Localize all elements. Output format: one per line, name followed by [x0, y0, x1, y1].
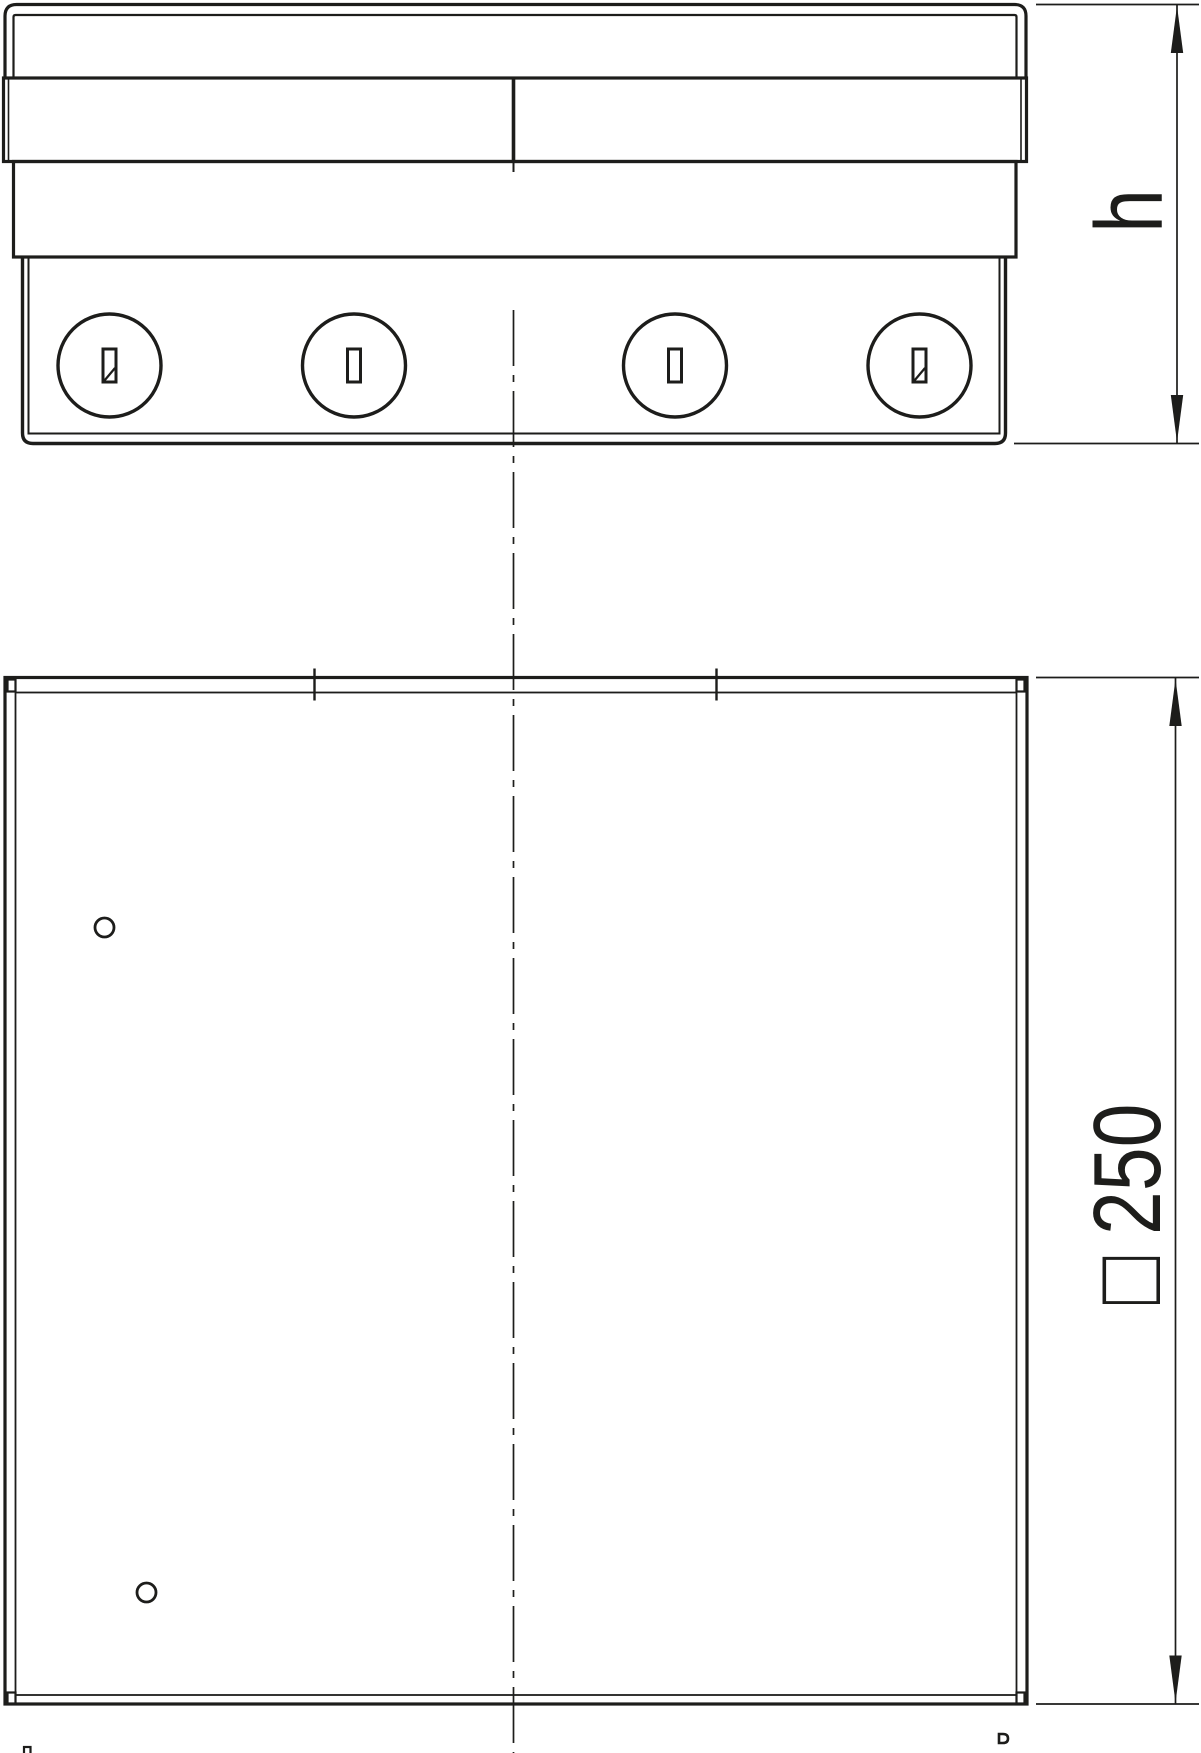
- plan-view: [5, 669, 1027, 1705]
- page-crop-marks: [24, 1734, 1008, 1753]
- corner-detail-bottom-right: [1017, 1693, 1025, 1705]
- height-dimension: h: [1014, 5, 1199, 444]
- height-arrow-up: [1171, 6, 1183, 53]
- corner-detail-bottom-left: [8, 1693, 16, 1705]
- screw-3: [624, 314, 727, 417]
- corner-detail-top-right: [1017, 680, 1025, 692]
- side-view: [4, 5, 1027, 444]
- pilot-hole-lower: [137, 1583, 156, 1602]
- crop-mark-left: [24, 1747, 31, 1753]
- screw-1-slot: [103, 349, 116, 382]
- screw-3-circle: [624, 314, 727, 417]
- corner-detail-top-left: [8, 680, 16, 692]
- screw-2-circle: [303, 314, 406, 417]
- width-arrow-down: [1169, 1656, 1181, 1703]
- technical-drawing-page: h □ 250: [0, 0, 1201, 1753]
- height-arrow-down: [1171, 395, 1183, 442]
- screw-4: [868, 314, 971, 417]
- upper-box-band: [14, 162, 1017, 258]
- screw-1-circle: [58, 314, 161, 417]
- screw-3-slot: [669, 349, 682, 382]
- screw-1-slot-diagonal: [105, 368, 116, 381]
- screw-4-slot-diagonal: [915, 368, 926, 381]
- width-dimension-label: □ 250: [1074, 1104, 1181, 1305]
- screw-4-circle: [868, 314, 971, 417]
- height-dimension-label: h: [1076, 189, 1183, 233]
- screw-1: [58, 314, 161, 417]
- crop-mark-right: [999, 1734, 1008, 1743]
- plan-outer-square: [5, 678, 1027, 1705]
- plan-inner-square: [16, 693, 1017, 1696]
- width-dimension: □ 250: [1036, 678, 1199, 1705]
- screw-2: [303, 314, 406, 417]
- drawing-canvas: h □ 250: [0, 0, 1201, 1753]
- width-arrow-up: [1169, 679, 1181, 726]
- screw-2-slot: [348, 349, 361, 382]
- lid-inner-line: [14, 15, 1017, 78]
- pilot-hole-upper: [95, 918, 114, 937]
- screw-4-slot: [913, 349, 926, 382]
